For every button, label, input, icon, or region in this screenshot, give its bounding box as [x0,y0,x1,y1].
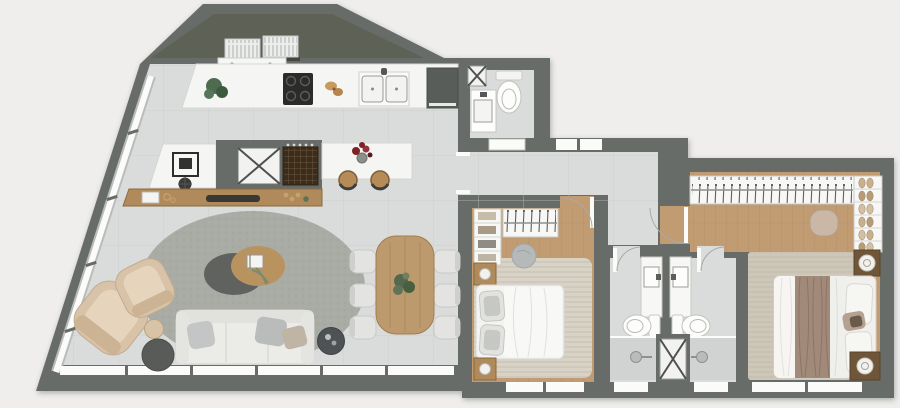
bedroom-1-window-mullion [543,382,546,392]
bathroom-2-window [694,382,728,392]
ac-condenser-1 [225,39,260,60]
double-sink [359,68,409,106]
bedroom-1-nightstand-1 [474,263,496,285]
pillow-1 [186,320,216,350]
island-area [149,140,412,192]
bedroom-1-pouf [512,244,536,268]
decor-sprig [303,196,309,202]
wardrobe-hangers [503,209,558,237]
master-window-mullion [805,382,808,392]
hanger-rail [690,176,854,204]
side-table [145,320,164,339]
powder-shaft [468,66,486,86]
dining-chairs-right [434,250,460,339]
hall-opening-jamb-top [456,152,470,156]
coffee-station [173,153,198,176]
bathroom-1-door-leaf [613,248,617,272]
refrigerator-handle [429,103,456,106]
bathroom-1-window [614,382,648,392]
dining-chairs-left [350,250,376,339]
decor-box [142,192,159,203]
bathroom-2-door-leaf [697,248,701,272]
bedroom-1-nightstand-2 [474,358,496,380]
shoe-shelves [854,176,882,252]
bathroom-1-toilet [623,315,660,337]
powder-wall-left-seg [458,138,489,152]
bedroom-1-bed [476,285,564,359]
bathroom-2-toilet [672,315,710,337]
book [247,255,263,268]
refrigerator [427,68,458,108]
planter [318,328,345,355]
master-nightstand-2 [850,352,880,380]
bathroom-shaft [656,334,690,384]
bar-stool-1 [339,171,357,189]
dining-area [350,236,460,339]
kitchen [182,64,458,108]
countertop [182,64,458,108]
master-door-leaf [684,207,688,243]
powder-door [489,139,525,150]
master-pouf [810,210,838,236]
sofa [176,310,314,364]
wine-rack [283,144,318,185]
master-nightstand-1 [854,250,880,276]
ac-condenser-2 [263,36,298,57]
powder-washbasin [471,90,496,132]
bathroom-1-shower [610,337,659,380]
bar-stool-2 [371,171,389,189]
soundbar [206,195,260,202]
floor-plan: Apartment floor plan – rendered top view… [0,0,900,408]
ottoman [142,339,174,371]
floor-plan-stage: Apartment floor plan – rendered top view… [0,0,900,408]
shelf-unit [474,209,501,265]
utility-cabinet [238,148,280,184]
hall-opening-jamb-bottom [456,190,470,194]
sideboard [123,189,322,206]
powder-toilet [496,71,522,113]
cooktop [283,73,313,105]
bathroom-2-shower [690,337,736,380]
entry-window-mullion [577,139,580,150]
